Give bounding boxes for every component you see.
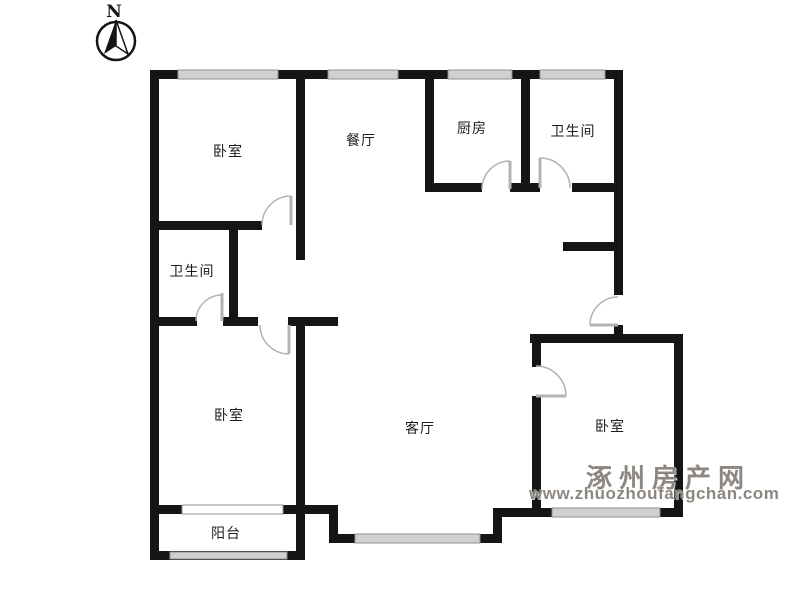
wall-segment: [398, 70, 448, 79]
room-label-kitchen: 厨房: [457, 118, 487, 138]
door-swing-arc: [482, 161, 510, 189]
wall-segment: [296, 317, 305, 560]
window: [355, 534, 480, 543]
room-label-bedroom-southwest: 卧室: [214, 405, 244, 425]
wall-segment: [572, 183, 620, 192]
wall-segment: [614, 70, 623, 295]
window: [448, 70, 512, 79]
wall-segment: [229, 221, 238, 326]
door-swing-arc: [196, 295, 222, 321]
door-swing-arc: [536, 366, 566, 396]
window: [552, 508, 660, 517]
wall-segment: [521, 70, 530, 192]
wall-segment: [223, 317, 258, 326]
window: [178, 70, 278, 79]
wall-segment: [425, 70, 434, 192]
wall-segment: [530, 334, 683, 343]
wall-segment: [563, 242, 620, 251]
wall-segment: [150, 505, 182, 514]
wall-segment: [288, 317, 338, 326]
door-swing-arc: [262, 196, 291, 225]
room-label-bathroom-west: 卫生间: [170, 261, 215, 281]
window: [540, 70, 605, 79]
wall-segment: [532, 334, 541, 367]
wall-segment: [296, 70, 305, 260]
room-label-bedroom-southeast: 卧室: [595, 416, 625, 436]
window: [182, 505, 283, 514]
room-label-dining-room: 餐厅: [346, 130, 376, 150]
door-swing-arc: [540, 158, 570, 188]
room-label-bedroom-northwest: 卧室: [213, 141, 243, 161]
room-label-living-room: 客厅: [405, 418, 435, 438]
door-swing-arc: [260, 325, 289, 354]
floor-plan: N: [0, 0, 800, 600]
watermark-site-url: www.zhuozhoufangchan.com: [529, 484, 779, 504]
compass-north-label: N: [106, 2, 122, 22]
wall-segment: [150, 317, 197, 326]
doors-layer: [196, 158, 618, 396]
floor-plan-page: { "compass": { "label": "N" }, "rooms": …: [0, 0, 800, 600]
wall-segment: [510, 183, 540, 192]
window: [328, 70, 398, 79]
wall-segment: [660, 508, 683, 517]
compass: N: [97, 2, 135, 60]
room-label-balcony: 阳台: [211, 523, 241, 543]
door-swing-arc: [590, 297, 618, 325]
wall-segment: [329, 534, 355, 543]
wall-segment: [150, 70, 159, 560]
room-label-bathroom-northeast: 卫生间: [551, 121, 596, 141]
window: [170, 552, 287, 559]
wall-segment: [425, 183, 482, 192]
wall-segment: [150, 221, 262, 230]
wall-segment: [493, 508, 536, 517]
